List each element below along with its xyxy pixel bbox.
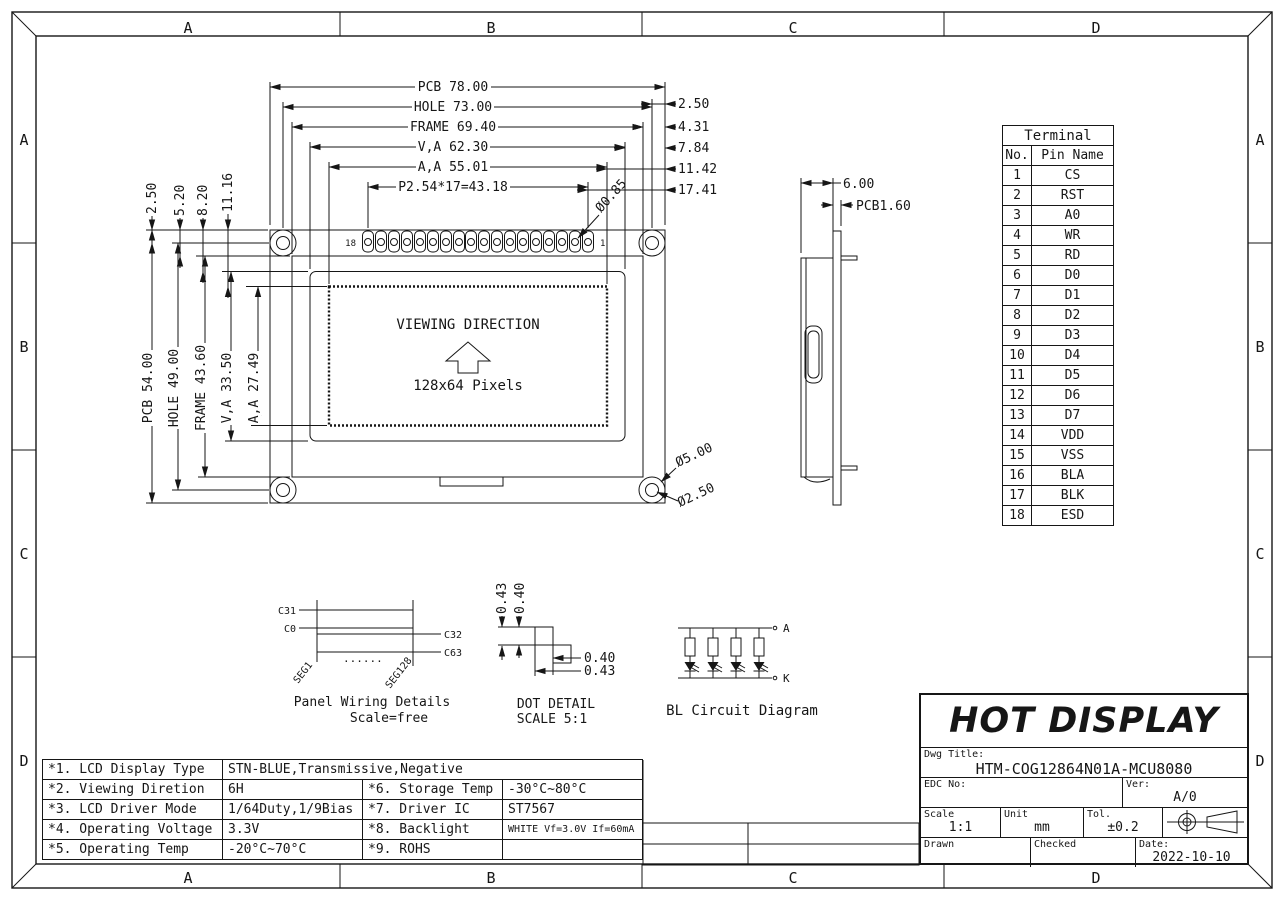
dim-pin-pitch: P2.54*17=43.18: [398, 180, 508, 195]
table-row: 18ESD: [1003, 506, 1114, 526]
drawn-label: Drawn: [924, 839, 954, 850]
scale-cell: Scale 1:1: [921, 808, 1000, 837]
first-angle-projection-icon: [1163, 808, 1248, 836]
checked-cell: Checked: [1030, 838, 1135, 867]
pin-no: 9: [1003, 326, 1032, 346]
pin-no: 5: [1003, 246, 1032, 266]
bl-cathode-label: K: [783, 672, 790, 685]
table-row: 16BLA: [1003, 466, 1114, 486]
spec-value: 1/64Duty,1/9Bias: [223, 800, 363, 820]
dot-square-2: [553, 645, 571, 663]
front-view-left-dimensions: PCB 54.00 HOLE 49.00 FRAME 43.60 V,A 33.…: [141, 173, 327, 503]
zone-label-bottom-d: D: [1091, 869, 1100, 887]
dim-hole-height: HOLE 49.00: [167, 349, 182, 427]
bl-branch-4: [754, 628, 769, 678]
pin-no: 15: [1003, 446, 1032, 466]
pin-no: 1: [1003, 166, 1032, 186]
table-row: 2RST: [1003, 186, 1114, 206]
bl-anode-label: A: [783, 622, 790, 635]
pin-no: 7: [1003, 286, 1032, 306]
projection-symbol-cell: [1162, 808, 1247, 837]
spec-value: WHITE Vf=3.0V If=60mA: [503, 820, 643, 840]
wiring-label-c63: C63: [444, 648, 462, 659]
dim-offset-aa: 11.16: [221, 173, 236, 212]
frame-outline: [292, 256, 643, 477]
version-value: A/0: [1123, 790, 1247, 805]
dim-pcb-thickness: PCB1.60: [856, 199, 911, 214]
scale-value: 1:1: [921, 820, 1000, 835]
pin-name: D6: [1032, 386, 1114, 406]
drawn-cell: Drawn: [921, 838, 1030, 867]
terminal-col-name-header: Pin Name: [1032, 146, 1114, 166]
wiring-label-c31: C31: [278, 606, 296, 617]
scale-label: Scale: [924, 809, 954, 820]
table-row: Terminal: [1003, 126, 1114, 146]
table-row: 17BLK: [1003, 486, 1114, 506]
pin-name: A0: [1032, 206, 1114, 226]
dot-dim-pitch-v: 0.43: [495, 583, 510, 614]
spec-label: *4. Operating Voltage: [43, 820, 223, 840]
zone-label-left-c: C: [19, 545, 28, 563]
spec-value: STN-BLUE,Transmissive,Negative: [223, 760, 643, 780]
pin-name: D4: [1032, 346, 1114, 366]
dot-detail: 0.43 0.40 0.40 0.43 DOT DETAIL SCALE 5:1: [495, 583, 615, 727]
active-area-outline: [329, 287, 607, 426]
side-top-tab: [841, 256, 857, 260]
dim-aa-edge-offset: 11.42: [678, 162, 717, 177]
zone-label-right-a: A: [1255, 131, 1264, 149]
pin-name: BLA: [1032, 466, 1114, 486]
table-row: 7D1: [1003, 286, 1114, 306]
spec-value: -20°C~70°C: [223, 840, 363, 860]
table-row: 9D3: [1003, 326, 1114, 346]
zone-label-left-d: D: [19, 752, 28, 770]
pin-no: 12: [1003, 386, 1032, 406]
viewing-direction-arrow-icon: [446, 342, 490, 373]
pin-no: 4: [1003, 226, 1032, 246]
pin-name: D7: [1032, 406, 1114, 426]
spec-label: *5. Operating Temp: [43, 840, 223, 860]
pin-no: 14: [1003, 426, 1032, 446]
pixel-count-label: 128x64 Pixels: [413, 378, 523, 394]
dim-va-height: V,A 33.50: [220, 353, 235, 423]
table-row: 6D0: [1003, 266, 1114, 286]
version-label: Ver:: [1126, 779, 1150, 790]
zone-label-left-b: B: [19, 338, 28, 356]
side-connector-inner: [808, 331, 819, 378]
pin-name: RST: [1032, 186, 1114, 206]
checked-label: Checked: [1034, 839, 1076, 850]
pin-no: 3: [1003, 206, 1032, 226]
table-row: *5. Operating Temp -20°C~70°C *9. ROHS: [43, 840, 643, 860]
date-label: Date:: [1139, 839, 1169, 850]
date-cell: Date: 2022-10-10: [1135, 838, 1247, 867]
dim-hole-edge-offset: 2.50: [678, 97, 709, 112]
pin-name: D0: [1032, 266, 1114, 286]
pin-name: BLK: [1032, 486, 1114, 506]
zone-label-bottom-a: A: [183, 869, 192, 887]
dim-side-thickness: 6.00: [843, 177, 874, 192]
pin-no: 8: [1003, 306, 1032, 326]
dot-square-1: [535, 627, 553, 645]
spec-value: [503, 840, 643, 860]
dwg-title-value: HTM-COG12864N01A-MCU8080: [921, 760, 1247, 778]
wiring-ellipsis: ......: [343, 652, 383, 665]
spec-label: *6. Storage Temp: [363, 780, 503, 800]
table-row: 11D5: [1003, 366, 1114, 386]
dim-hole-inner-dia: Ø2.50: [675, 480, 717, 510]
spec-label: *9. ROHS: [363, 840, 503, 860]
table-row: *1. LCD Display Type STN-BLUE,Transmissi…: [43, 760, 643, 780]
table-row: 14VDD: [1003, 426, 1114, 446]
table-row: *4. Operating Voltage 3.3V *8. Backlight…: [43, 820, 643, 840]
engineering-drawing-page: A B C D A B C D A B C D A B C D: [0, 0, 1284, 900]
pin-number-last: 18: [345, 239, 356, 249]
spec-extension-cells: [643, 760, 919, 865]
dim-va-edge-offset: 7.84: [678, 141, 709, 156]
zone-label-right-d: D: [1255, 752, 1264, 770]
wiring-label-seg1: SEG1: [292, 660, 316, 686]
pin-name: RD: [1032, 246, 1114, 266]
table-row: 13D7: [1003, 406, 1114, 426]
company-name: HOT DISPLAY: [921, 695, 1247, 747]
bl-circuit-caption: BL Circuit Diagram: [666, 703, 818, 719]
title-block: HOT DISPLAY Dwg Title: HTM-COG12864N01A-…: [919, 693, 1249, 865]
unit-value: mm: [1001, 820, 1083, 835]
pin-no: 10: [1003, 346, 1032, 366]
table-row: 5RD: [1003, 246, 1114, 266]
pin-name: D5: [1032, 366, 1114, 386]
viewing-area-outline: [310, 272, 625, 442]
pin-no: 2: [1003, 186, 1032, 206]
zone-label-top-a: A: [183, 19, 192, 37]
side-pcb-strip: [833, 231, 841, 505]
bl-branch-3: [731, 628, 746, 678]
pin-name: WR: [1032, 226, 1114, 246]
dim-pcb-width: PCB 78.00: [418, 80, 488, 95]
pin-no: 18: [1003, 506, 1032, 526]
pin-no: 16: [1003, 466, 1032, 486]
zone-label-top-b: B: [486, 19, 495, 37]
zone-label-right-b: B: [1255, 338, 1264, 356]
dim-offset-va: 8.20: [196, 185, 211, 216]
table-row: *3. LCD Driver Mode 1/64Duty,1/9Bias *7.…: [43, 800, 643, 820]
table-row: 12D6: [1003, 386, 1114, 406]
unit-cell: Unit mm: [1000, 808, 1083, 837]
pin-name: D2: [1032, 306, 1114, 326]
zone-label-bottom-b: B: [486, 869, 495, 887]
pin-no: 17: [1003, 486, 1032, 506]
panel-wiring-detail: C31 C0 C32 C63 SEG1 SEG128 ...... Panel …: [278, 600, 462, 726]
dim-frame-height: FRAME 43.60: [194, 345, 209, 431]
spec-label: *7. Driver IC: [363, 800, 503, 820]
front-view-top-dimensions: PCB 78.00 HOLE 73.00 FRAME 69.40 V,A 62.…: [270, 80, 665, 284]
spec-label: *3. LCD Driver Mode: [43, 800, 223, 820]
pin-no: 11: [1003, 366, 1032, 386]
spec-value: 6H: [223, 780, 363, 800]
zone-label-top-d: D: [1091, 19, 1100, 37]
edc-no-label: EDC No:: [924, 779, 966, 790]
dim-pin-edge-offset: 17.41: [678, 183, 717, 198]
side-foot: [804, 477, 830, 482]
spec-value: 3.3V: [223, 820, 363, 840]
dim-pcb-height: PCB 54.00: [141, 353, 156, 423]
spec-value: ST7567: [503, 800, 643, 820]
dim-aa-width: A,A 55.01: [418, 160, 488, 175]
bl-circuit: A K BL Circuit Diagram: [666, 622, 818, 719]
dot-detail-scale: SCALE 5:1: [517, 712, 587, 727]
pin-no: 13: [1003, 406, 1032, 426]
tolerance-cell: Tol. ±0.2: [1083, 808, 1162, 837]
pin-name: D3: [1032, 326, 1114, 346]
zone-label-bottom-c: C: [788, 869, 797, 887]
dot-dim-size-v: 0.40: [513, 583, 528, 614]
table-row: *2. Viewing Diretion 6H *6. Storage Temp…: [43, 780, 643, 800]
table-row: 10D4: [1003, 346, 1114, 366]
zone-label-top-c: C: [788, 19, 797, 37]
dim-frame-edge-offset: 4.31: [678, 120, 709, 135]
terminal-col-no-header: No.: [1003, 146, 1032, 166]
wiring-label-c0: C0: [284, 624, 296, 635]
zone-label-left-a: A: [19, 131, 28, 149]
table-row: 15VSS: [1003, 446, 1114, 466]
tolerance-label: Tol.: [1087, 809, 1111, 820]
bl-branch-1: [685, 628, 700, 678]
dot-dim-pitch-h: 0.43: [584, 664, 615, 679]
dim-va-width: V,A 62.30: [418, 140, 488, 155]
pin-no: 6: [1003, 266, 1032, 286]
table-row: 1CS: [1003, 166, 1114, 186]
edc-no-cell: EDC No:: [921, 778, 1122, 807]
spec-table: *1. LCD Display Type STN-BLUE,Transmissi…: [42, 759, 643, 860]
dim-aa-height: A,A 27.49: [247, 353, 262, 423]
terminal-table-title: Terminal: [1003, 126, 1114, 146]
wiring-label-c32: C32: [444, 630, 462, 641]
table-row: 8D2: [1003, 306, 1114, 326]
pin-name: VDD: [1032, 426, 1114, 446]
dim-frame-width: FRAME 69.40: [410, 120, 496, 135]
frame-bottom-tab: [440, 477, 503, 486]
side-view: 6.00 PCB1.60: [801, 177, 911, 505]
side-bottom-tab: [841, 466, 857, 470]
pin-number-first: 1: [600, 239, 605, 249]
pin-name: D1: [1032, 286, 1114, 306]
wiring-caption: Panel Wiring Details: [294, 695, 451, 710]
pin-name: ESD: [1032, 506, 1114, 526]
dot-detail-caption: DOT DETAIL: [517, 697, 595, 712]
bl-branch-2: [708, 628, 723, 678]
pin-name: VSS: [1032, 446, 1114, 466]
dim-hole-width: HOLE 73.00: [414, 100, 492, 115]
date-value: 2022-10-10: [1136, 850, 1247, 865]
zone-label-right-c: C: [1255, 545, 1264, 563]
hole-callouts: Ø5.00 Ø2.50: [657, 440, 717, 510]
spec-label: *1. LCD Display Type: [43, 760, 223, 780]
dwg-title-cell: Dwg Title: HTM-COG12864N01A-MCU8080: [921, 748, 1247, 777]
wiring-label-seg128: SEG128: [384, 656, 415, 691]
dim-offset-frame: 5.20: [173, 185, 188, 216]
table-row: 3A0: [1003, 206, 1114, 226]
dim-offset-hole: 2.50: [145, 183, 160, 214]
dwg-title-label: Dwg Title:: [924, 749, 984, 760]
dim-hole-outer-dia: Ø5.00: [673, 440, 715, 470]
wiring-scale-caption: Scale=free: [350, 711, 428, 726]
pin-name: CS: [1032, 166, 1114, 186]
pin-row: [363, 231, 594, 252]
terminal-table: Terminal No. Pin Name 1CS 2RST 3A0 4WR 5…: [1002, 125, 1114, 526]
unit-label: Unit: [1004, 809, 1028, 820]
spec-label: *8. Backlight: [363, 820, 503, 840]
spec-label: *2. Viewing Diretion: [43, 780, 223, 800]
spec-value: -30°C~80°C: [503, 780, 643, 800]
version-cell: Ver: A/0: [1122, 778, 1247, 807]
table-row: No. Pin Name: [1003, 146, 1114, 166]
table-row: 4WR: [1003, 226, 1114, 246]
viewing-direction-label: VIEWING DIRECTION: [396, 317, 539, 333]
tolerance-value: ±0.2: [1084, 820, 1162, 835]
